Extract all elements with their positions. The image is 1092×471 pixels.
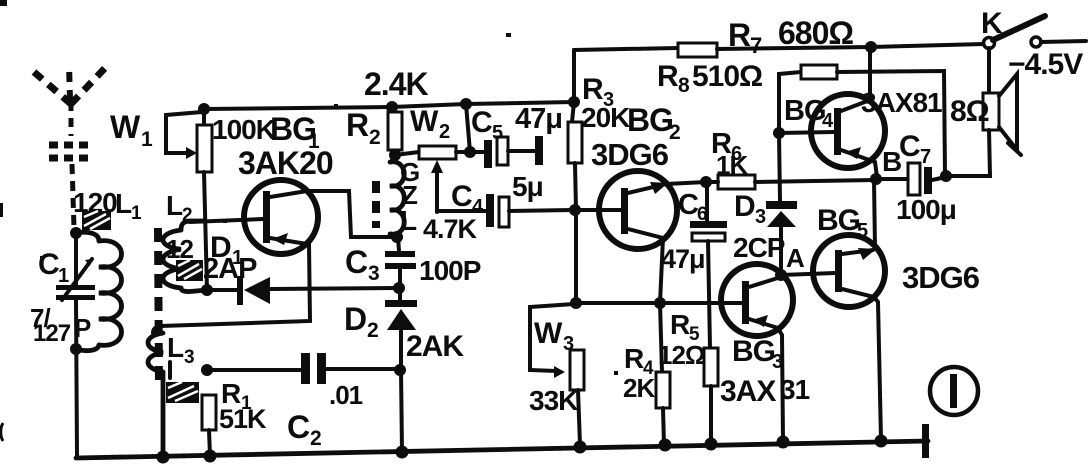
svg-text:BG: BG [732,335,775,368]
svg-text:3AK20: 3AK20 [238,145,333,181]
svg-text:7: 7 [750,33,762,58]
svg-text:3: 3 [772,351,783,373]
svg-text:31: 31 [780,374,810,405]
svg-text:C: C [451,180,472,213]
svg-text:2: 2 [439,121,450,143]
svg-text:D: D [734,190,755,223]
svg-text:1K: 1K [716,150,748,180]
svg-text:3: 3 [755,206,766,228]
svg-text:1: 1 [141,128,153,151]
svg-text:BG: BG [817,204,860,237]
svg-text:R: R [624,343,644,374]
svg-text:8: 8 [678,74,690,97]
svg-text:4.7K: 4.7K [423,214,478,244]
svg-text:2K: 2K [623,373,655,403]
svg-text:8Ω: 8Ω [950,95,989,128]
svg-text:2: 2 [369,126,380,149]
svg-text:6: 6 [697,204,707,225]
svg-text:L: L [400,205,417,236]
svg-text:47μ: 47μ [515,103,562,135]
svg-text:W: W [410,105,439,138]
svg-text:2CP: 2CP [733,232,785,263]
svg-text:2: 2 [367,319,378,342]
svg-text:127: 127 [33,320,71,347]
svg-text:3DG6: 3DG6 [902,260,980,295]
svg-text:C: C [287,409,310,445]
svg-text:680Ω: 680Ω [778,15,853,51]
svg-text:1: 1 [58,265,69,287]
svg-text:100μ: 100μ [896,194,956,225]
svg-text:12Ω: 12Ω [658,340,705,370]
svg-text:7: 7 [920,146,931,168]
svg-text:100P: 100P [419,255,481,286]
svg-text:L: L [166,190,183,221]
svg-text:−4.5V: −4.5V [1008,48,1083,81]
svg-text:5μ: 5μ [512,171,543,202]
svg-text:R: R [670,309,690,340]
svg-text:P: P [74,313,91,343]
svg-text:.01: .01 [329,380,363,410]
svg-text:C: C [899,130,920,163]
svg-text:W: W [110,109,141,145]
svg-text:BG: BG [627,102,673,138]
svg-text:3AX: 3AX [720,375,776,408]
svg-text:5: 5 [857,220,868,242]
svg-text:2.4K: 2.4K [364,66,428,102]
svg-text:47μ: 47μ [661,244,705,274]
svg-text:20K: 20K [581,102,630,133]
svg-text:D: D [344,301,366,337]
svg-text:51K: 51K [219,404,267,434]
svg-text:3: 3 [184,347,194,368]
svg-text:2AP: 2AP [203,253,257,285]
svg-text:BG: BG [784,95,826,127]
svg-text:3DG6: 3DG6 [591,137,669,172]
svg-text:3: 3 [563,333,574,355]
svg-text:R: R [728,17,751,53]
svg-text:2: 2 [310,427,321,450]
svg-text:W: W [534,317,563,350]
svg-text:3AX81: 3AX81 [861,87,942,118]
svg-text:L: L [115,188,132,219]
svg-text:100K: 100K [212,114,276,145]
svg-text:C: C [471,106,492,139]
svg-text:K: K [981,7,1003,40]
svg-text:L: L [167,332,184,363]
svg-text:C: C [38,248,59,281]
svg-text:3: 3 [368,262,379,285]
svg-text:510Ω: 510Ω [692,60,762,93]
svg-text:2: 2 [669,121,680,144]
svg-text:C: C [678,189,699,221]
svg-text:R: R [657,60,679,93]
svg-text:5: 5 [492,122,503,144]
svg-text:2AK: 2AK [406,330,464,363]
svg-text:R: R [346,107,369,143]
svg-text:1: 1 [131,203,142,224]
svg-text:C: C [345,244,368,280]
svg-text:33K: 33K [529,385,578,416]
svg-text:A: A [786,243,805,273]
